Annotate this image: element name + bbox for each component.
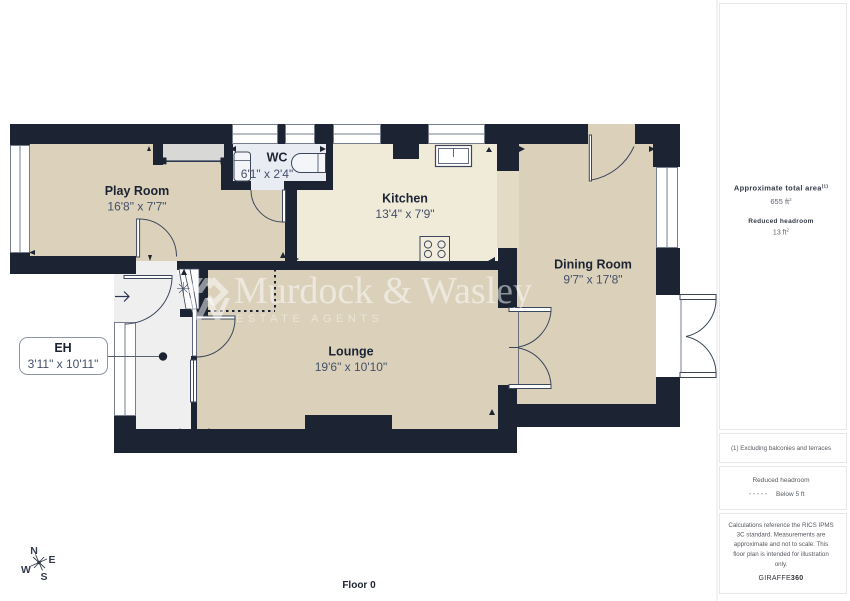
svg-text:ESTATE AGENTS: ESTATE AGENTS [236, 313, 383, 325]
svg-text:floor plan is intended for ill: floor plan is intended for illustration [733, 551, 829, 558]
svg-text:W: W [21, 564, 31, 576]
svg-text:(1) Excluding balconies and te: (1) Excluding balconies and terraces [731, 445, 831, 452]
svg-text:19'6" x 10'10": 19'6" x 10'10" [315, 360, 388, 374]
svg-text:GIRAFFE360: GIRAFFE360 [758, 575, 803, 582]
svg-text:S: S [40, 571, 47, 583]
svg-text:Below 5 ft: Below 5 ft [776, 491, 805, 498]
svg-text:only.: only. [775, 561, 788, 568]
svg-text:Reduced headroom: Reduced headroom [748, 218, 813, 225]
svg-text:Approximate total area(1): Approximate total area(1) [734, 184, 828, 193]
svg-text:3'11" x 10'11": 3'11" x 10'11" [28, 357, 99, 371]
svg-text:Floor 0: Floor 0 [342, 580, 376, 591]
svg-text:9'7" x 17'8": 9'7" x 17'8" [563, 273, 622, 287]
svg-text:Lounge: Lounge [328, 345, 373, 359]
svg-text:Murdock & Wasley: Murdock & Wasley [234, 270, 532, 312]
svg-text:N: N [30, 545, 38, 557]
svg-text:Calculations reference the RIC: Calculations reference the RICS IPMS [728, 522, 833, 529]
svg-text:E: E [48, 554, 55, 566]
svg-text:6'1" x 2'4": 6'1" x 2'4" [241, 167, 293, 181]
svg-text:655 ft2: 655 ft2 [770, 197, 792, 206]
svg-text:Play Room: Play Room [105, 184, 170, 198]
svg-text:3C standard. Measurements are: 3C standard. Measurements are [737, 532, 826, 539]
svg-text:Kitchen: Kitchen [382, 192, 428, 206]
svg-text:EH: EH [54, 341, 71, 355]
svg-text:13'4" x 7'9": 13'4" x 7'9" [375, 207, 434, 221]
svg-text:approximate and not to scale.: approximate and not to scale. This [734, 541, 828, 548]
svg-text:Dining Room: Dining Room [554, 258, 632, 272]
svg-text:WC: WC [267, 151, 288, 165]
svg-text:16'8" x 7'7": 16'8" x 7'7" [107, 200, 166, 214]
svg-text:Reduced headroom: Reduced headroom [752, 477, 809, 484]
